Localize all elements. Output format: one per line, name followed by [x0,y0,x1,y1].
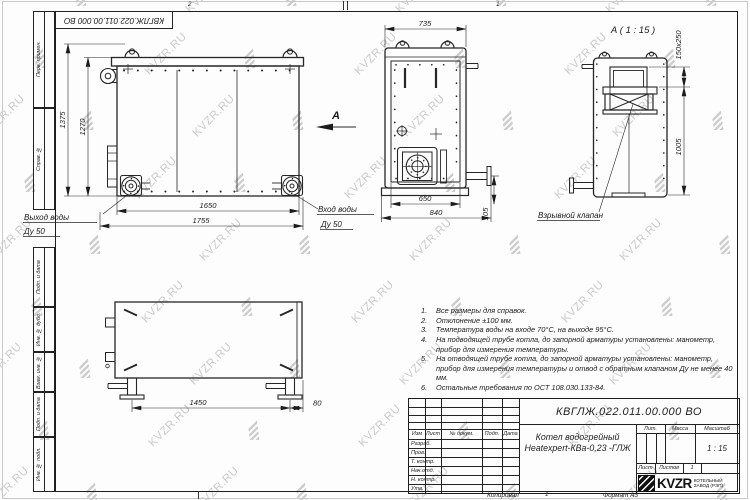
row-tkontr: Т. контр. [411,457,451,466]
dim-1650: 1650 [200,201,218,210]
section-arrow [316,124,333,131]
copied-label: Копировал [458,492,548,499]
dim-1450: 1450 [190,398,208,407]
note-item: 6. Остальные требования по ОСТ 108.030.1… [421,383,735,393]
dim-735: 735 [419,19,432,28]
note-number: 2. [421,316,436,326]
note-number: 3. [421,325,436,335]
kvzr-logo-caption: КОТЕЛЬНЫЙ ЗАВОД (РЭП) [694,478,723,489]
inlet-dn-label: Ду 50 [320,220,342,229]
outlet-label: Выход воды [24,213,69,222]
product-name-line1: Котел водогрейный [536,432,620,443]
col-list: Лист [425,429,441,439]
note-number: 5. [421,354,436,383]
note-item: 1. Все размеры для справок. [421,306,735,316]
row-razrab: Разраб. [411,439,451,448]
side-view-texts: 735 650 840 105 [419,19,490,220]
logo-caption-line1: КОТЕЛЬНЫЙ [694,478,723,483]
note-text: Все размеры для справок. [436,306,735,316]
note-text: Остальные требования по ОСТ 108.030.133-… [436,383,735,393]
side-view [382,25,500,222]
document-number: КВГЛЖ.022.011.00.000 ВО [519,399,739,424]
explosion-valve-label: Взрывной клапан [538,211,604,220]
sheets-label: Листов [655,463,683,473]
col-izm: Изм [409,429,425,439]
scale-value: 1 : 15 [695,433,739,463]
dim-105: 105 [481,207,490,220]
format-label: Формат А3 [603,492,638,499]
company-logo: KVZR КОТЕЛЬНЫЙ ЗАВОД (РЭП) [638,474,737,492]
note-text: На подводящей трубе котла, до запорной а… [436,335,735,354]
note-item: 5. На отводящей трубе котла, до запорной… [421,354,735,383]
detail-view-texts: А ( 1 : 15 ) 150x250 1005 Взрывной клапа… [538,25,683,220]
col-doc: № докум. [441,429,482,439]
plan-view [106,302,304,412]
kvzr-logo-icon [638,475,655,492]
row-nachotd: Нач.отд. [411,466,451,475]
dim-1005: 1005 [674,138,683,156]
dim-1270: 1270 [78,118,87,136]
inlet-label: Вход воды [318,205,357,214]
note-number: 6. [421,383,436,393]
col-sign: Подп. [482,429,502,439]
note-item: 4. На подводящей трубе котла, до запорно… [421,335,735,354]
product-name-line2: Heatexpert-КВа-0,23 -ГЛЖ [525,443,631,454]
drawing-sheet: KVZR.RUKVZR.RUKVZR.RUKVZR.RUKVZR.RUKVZR.… [0,0,750,500]
dim-1755: 1755 [193,216,211,225]
note-item: 2. Отклонение ±100 мм. [421,316,735,326]
note-text: Отклонение ±100 мм. [436,316,735,326]
row-utv: Утв. [411,484,451,493]
sheets-value: 1 [683,463,701,473]
technical-notes: 1. Все размеры для справок. 2. Отклонени… [421,306,735,393]
mass-label: Масса [665,424,695,433]
dim-650: 650 [419,194,432,203]
dim-150x250: 150x250 [674,30,683,60]
dim-80: 80 [313,399,322,408]
title-block: Изм Лист № докум. Подп. Дата Разраб. Про… [408,398,740,494]
lit-label: Лит. [636,424,665,433]
note-item: 3. Температура воды на входе 70°С, на вы… [421,325,735,335]
detail-title: А ( 1 : 15 ) [610,25,655,36]
detail-view [537,52,690,221]
product-name: Котел водогрейный Heatexpert-КВа-0,23 -Г… [521,428,634,458]
col-date: Дата [502,429,519,439]
note-number: 4. [421,335,436,354]
section-letter: А [331,110,340,122]
row-nkontr: Н. контр. [411,475,451,484]
note-text: Температура воды на входе 70°С, на выход… [436,325,735,335]
logo-caption-line2: ЗАВОД (РЭП) [694,483,723,488]
outlet-dn-label: Ду 50 [23,227,45,236]
row-prov: Пров. [411,448,451,457]
note-number: 1. [421,306,436,316]
front-view-texts: 1650 1755 1375 1270 Выход воды Ду 50 Вхо… [23,110,357,236]
kvzr-logo-text: KVZR [657,476,692,491]
scale-label: Масштаб [695,424,739,433]
dim-840: 840 [430,208,443,217]
dim-1375: 1375 [58,111,67,129]
note-text: На отводящей трубе котла, до запорной ар… [436,354,735,383]
sheet-label: Лист [636,463,655,473]
